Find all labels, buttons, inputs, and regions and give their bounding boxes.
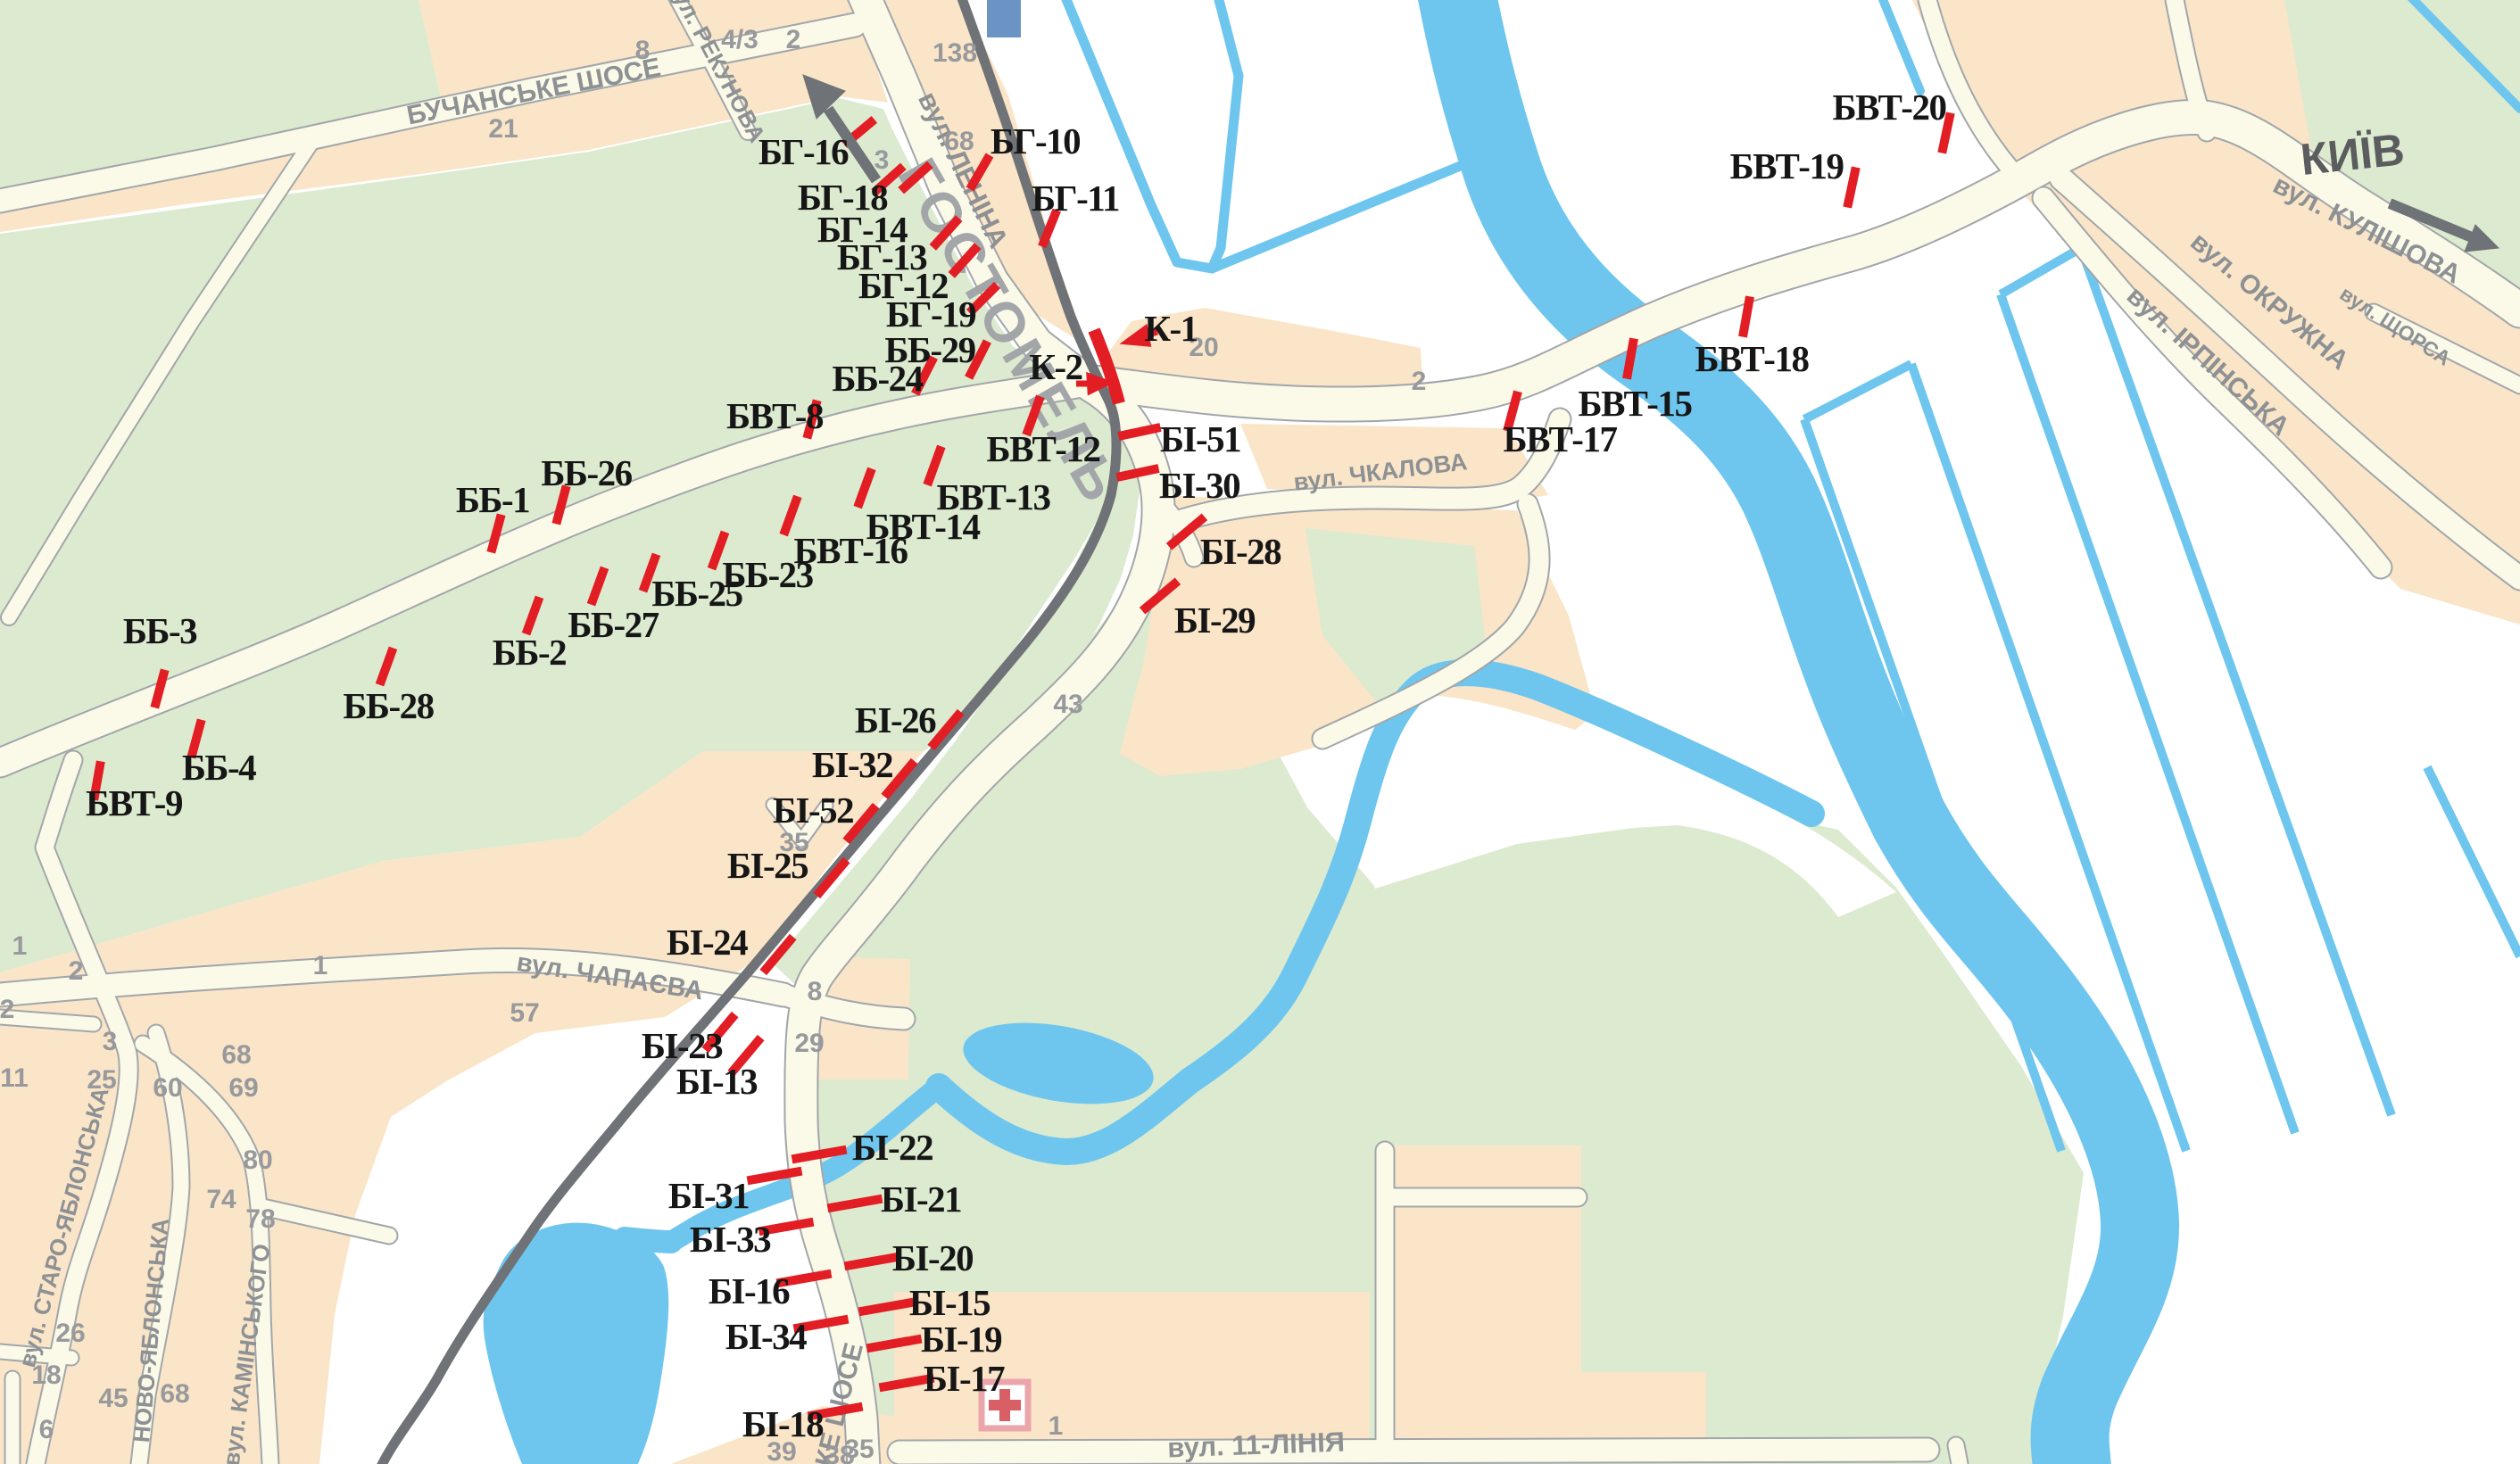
svg-text:БВТ-9: БВТ-9 — [86, 782, 183, 823]
svg-text:3: 3 — [103, 1027, 118, 1056]
svg-text:ББ-27: ББ-27 — [568, 604, 659, 645]
svg-text:БГ-11: БГ-11 — [1032, 178, 1119, 219]
svg-text:1: 1 — [12, 931, 28, 961]
svg-text:4/3: 4/3 — [721, 25, 758, 54]
svg-text:БВТ-20: БВТ-20 — [1833, 87, 1946, 128]
svg-text:БІ-20: БІ-20 — [892, 1237, 973, 1278]
svg-text:БІ-19: БІ-19 — [921, 1319, 1002, 1360]
svg-text:БГ-16: БГ-16 — [758, 131, 849, 172]
svg-text:БІ-25: БІ-25 — [727, 845, 808, 886]
svg-text:БІ-32: БІ-32 — [812, 744, 892, 785]
svg-text:БІ-24: БІ-24 — [667, 922, 748, 963]
svg-text:К-1: К-1 — [1144, 308, 1197, 349]
svg-text:БВТ-17: БВТ-17 — [1504, 418, 1618, 459]
svg-text:60: 60 — [153, 1073, 182, 1103]
svg-text:БІ-13: БІ-13 — [676, 1061, 758, 1102]
svg-text:БІ-21: БІ-21 — [881, 1179, 961, 1220]
svg-text:78: 78 — [245, 1204, 275, 1234]
svg-text:1: 1 — [313, 951, 328, 980]
svg-text:БІ-17: БІ-17 — [924, 1358, 1005, 1399]
svg-text:26: 26 — [55, 1319, 85, 1348]
svg-text:БІ-22: БІ-22 — [852, 1127, 933, 1168]
svg-text:2: 2 — [786, 25, 801, 54]
svg-text:БГ-10: БГ-10 — [991, 120, 1080, 161]
svg-text:74: 74 — [206, 1185, 236, 1214]
svg-text:69: 69 — [228, 1073, 258, 1103]
svg-text:25: 25 — [87, 1065, 116, 1095]
svg-text:2: 2 — [0, 995, 14, 1024]
svg-text:БІ-29: БІ-29 — [1174, 600, 1256, 641]
svg-text:68: 68 — [160, 1379, 189, 1409]
svg-text:3: 3 — [875, 145, 890, 175]
svg-text:1: 1 — [1049, 1411, 1064, 1441]
svg-text:138: 138 — [933, 38, 977, 68]
svg-text:ББ-3: ББ-3 — [123, 610, 197, 651]
svg-text:БВТ-8: БВТ-8 — [726, 395, 824, 436]
svg-text:БІ-52: БІ-52 — [773, 790, 853, 831]
svg-text:БІ-18: БІ-18 — [742, 1403, 824, 1444]
svg-text:БІ-31: БІ-31 — [668, 1175, 749, 1216]
svg-text:БІ-15: БІ-15 — [909, 1282, 990, 1323]
svg-text:БІ-26: БІ-26 — [855, 699, 936, 740]
svg-text:68: 68 — [944, 127, 974, 156]
svg-text:БВТ-19: БВТ-19 — [1730, 145, 1844, 186]
svg-text:ББ-26: ББ-26 — [541, 452, 632, 493]
svg-text:57: 57 — [510, 998, 539, 1028]
svg-text:БВТ-12: БВТ-12 — [987, 428, 1100, 469]
svg-text:6: 6 — [39, 1415, 54, 1444]
svg-text:ББ-1: ББ-1 — [456, 479, 529, 520]
svg-text:БІ-51: БІ-51 — [1160, 418, 1240, 459]
svg-text:45: 45 — [98, 1384, 128, 1413]
svg-text:2: 2 — [69, 956, 84, 986]
svg-text:8: 8 — [808, 977, 823, 1006]
svg-text:БІ-34: БІ-34 — [725, 1316, 807, 1357]
svg-text:68: 68 — [221, 1040, 251, 1070]
svg-text:БІ-16: БІ-16 — [709, 1270, 790, 1311]
svg-text:вул. 11-ЛІНІЯ: вул. 11-ЛІНІЯ — [1167, 1427, 1346, 1464]
svg-text:43: 43 — [1053, 690, 1082, 719]
svg-text:11: 11 — [0, 1063, 29, 1093]
svg-text:18: 18 — [31, 1361, 61, 1390]
svg-text:К-2: К-2 — [1029, 346, 1082, 387]
svg-text:ББ-25: ББ-25 — [651, 573, 742, 614]
svg-text:21: 21 — [488, 114, 518, 144]
svg-text:ББ-2: ББ-2 — [493, 632, 566, 673]
svg-text:БІ-30: БІ-30 — [1159, 465, 1239, 506]
svg-text:БІ-33: БІ-33 — [690, 1219, 771, 1260]
svg-text:80: 80 — [243, 1146, 272, 1175]
svg-text:ББ-24: ББ-24 — [832, 358, 923, 399]
svg-text:ББ-28: ББ-28 — [343, 685, 434, 726]
svg-text:БВТ-18: БВТ-18 — [1695, 338, 1810, 379]
svg-text:ББ-4: ББ-4 — [182, 747, 256, 788]
svg-text:35: 35 — [844, 1435, 874, 1464]
svg-text:29: 29 — [794, 1029, 824, 1058]
svg-text:БІ-28: БІ-28 — [1200, 531, 1281, 572]
svg-text:8: 8 — [635, 36, 651, 65]
svg-text:2: 2 — [1412, 367, 1427, 396]
